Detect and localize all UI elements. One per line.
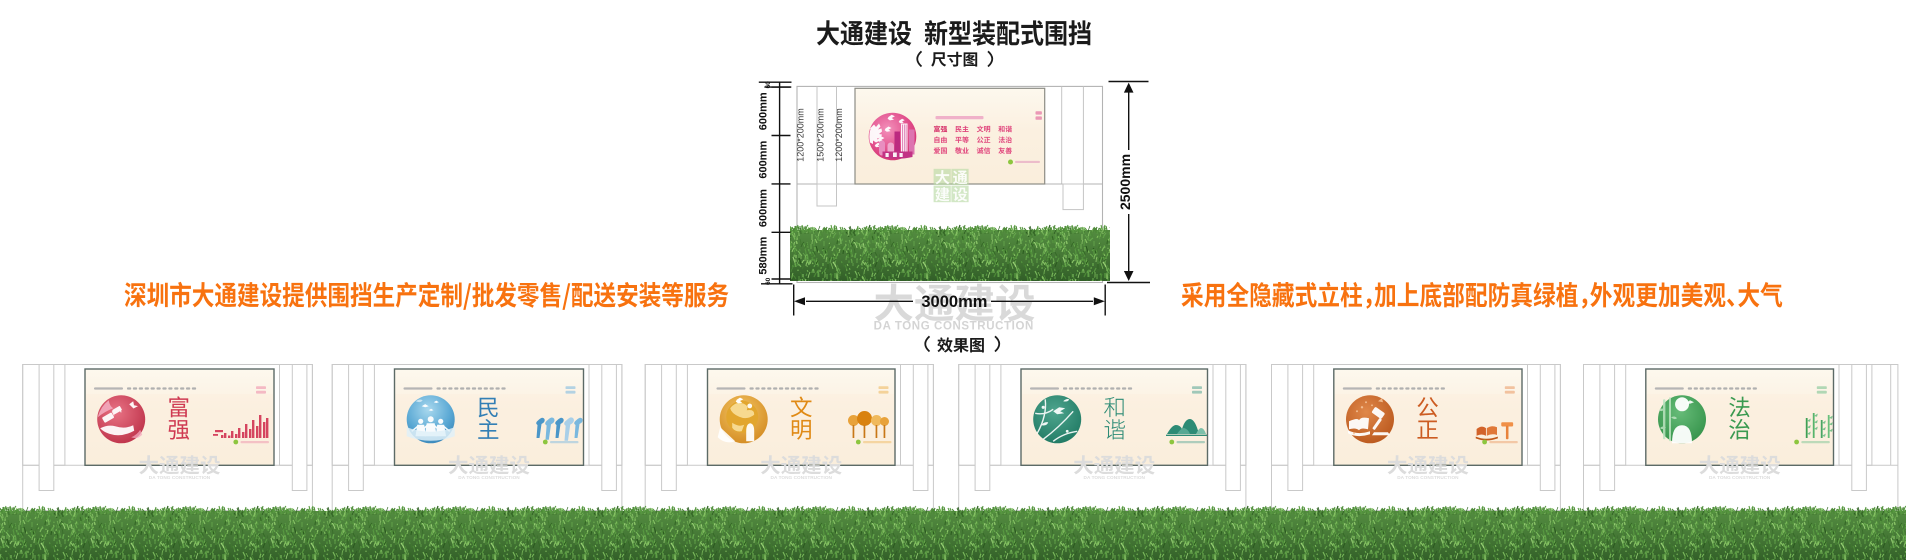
svg-text:2500mm: 2500mm <box>1117 154 1133 210</box>
svg-text:DA TONG CONSTRUCTION: DA TONG CONSTRUCTION <box>1397 475 1459 480</box>
svg-text:600mm: 600mm <box>758 141 770 179</box>
svg-text:60: 60 <box>765 277 772 285</box>
svg-text:600mm: 600mm <box>758 189 770 227</box>
svg-text:DA TONG CONSTRUCTION: DA TONG CONSTRUCTION <box>771 475 833 480</box>
svg-text:580mm: 580mm <box>758 237 770 275</box>
svg-text:DA TONG CONSTRUCTION: DA TONG CONSTRUCTION <box>1084 475 1146 480</box>
svg-text:600mm: 600mm <box>758 92 770 130</box>
svg-text:DA TONG CONSTRUCTION: DA TONG CONSTRUCTION <box>149 475 211 480</box>
svg-text:1200*200mm: 1200*200mm <box>834 108 844 162</box>
svg-text:1200*200mm: 1200*200mm <box>796 108 806 162</box>
svg-text:60: 60 <box>765 81 772 89</box>
svg-text:1500*200mm: 1500*200mm <box>816 108 826 162</box>
svg-text:3000mm: 3000mm <box>921 293 987 311</box>
svg-text:DA TONG CONSTRUCTION: DA TONG CONSTRUCTION <box>458 475 520 480</box>
svg-text:DA TONG CONSTRUCTION: DA TONG CONSTRUCTION <box>874 321 1034 333</box>
svg-text:DA TONG CONSTRUCTION: DA TONG CONSTRUCTION <box>1709 475 1771 480</box>
